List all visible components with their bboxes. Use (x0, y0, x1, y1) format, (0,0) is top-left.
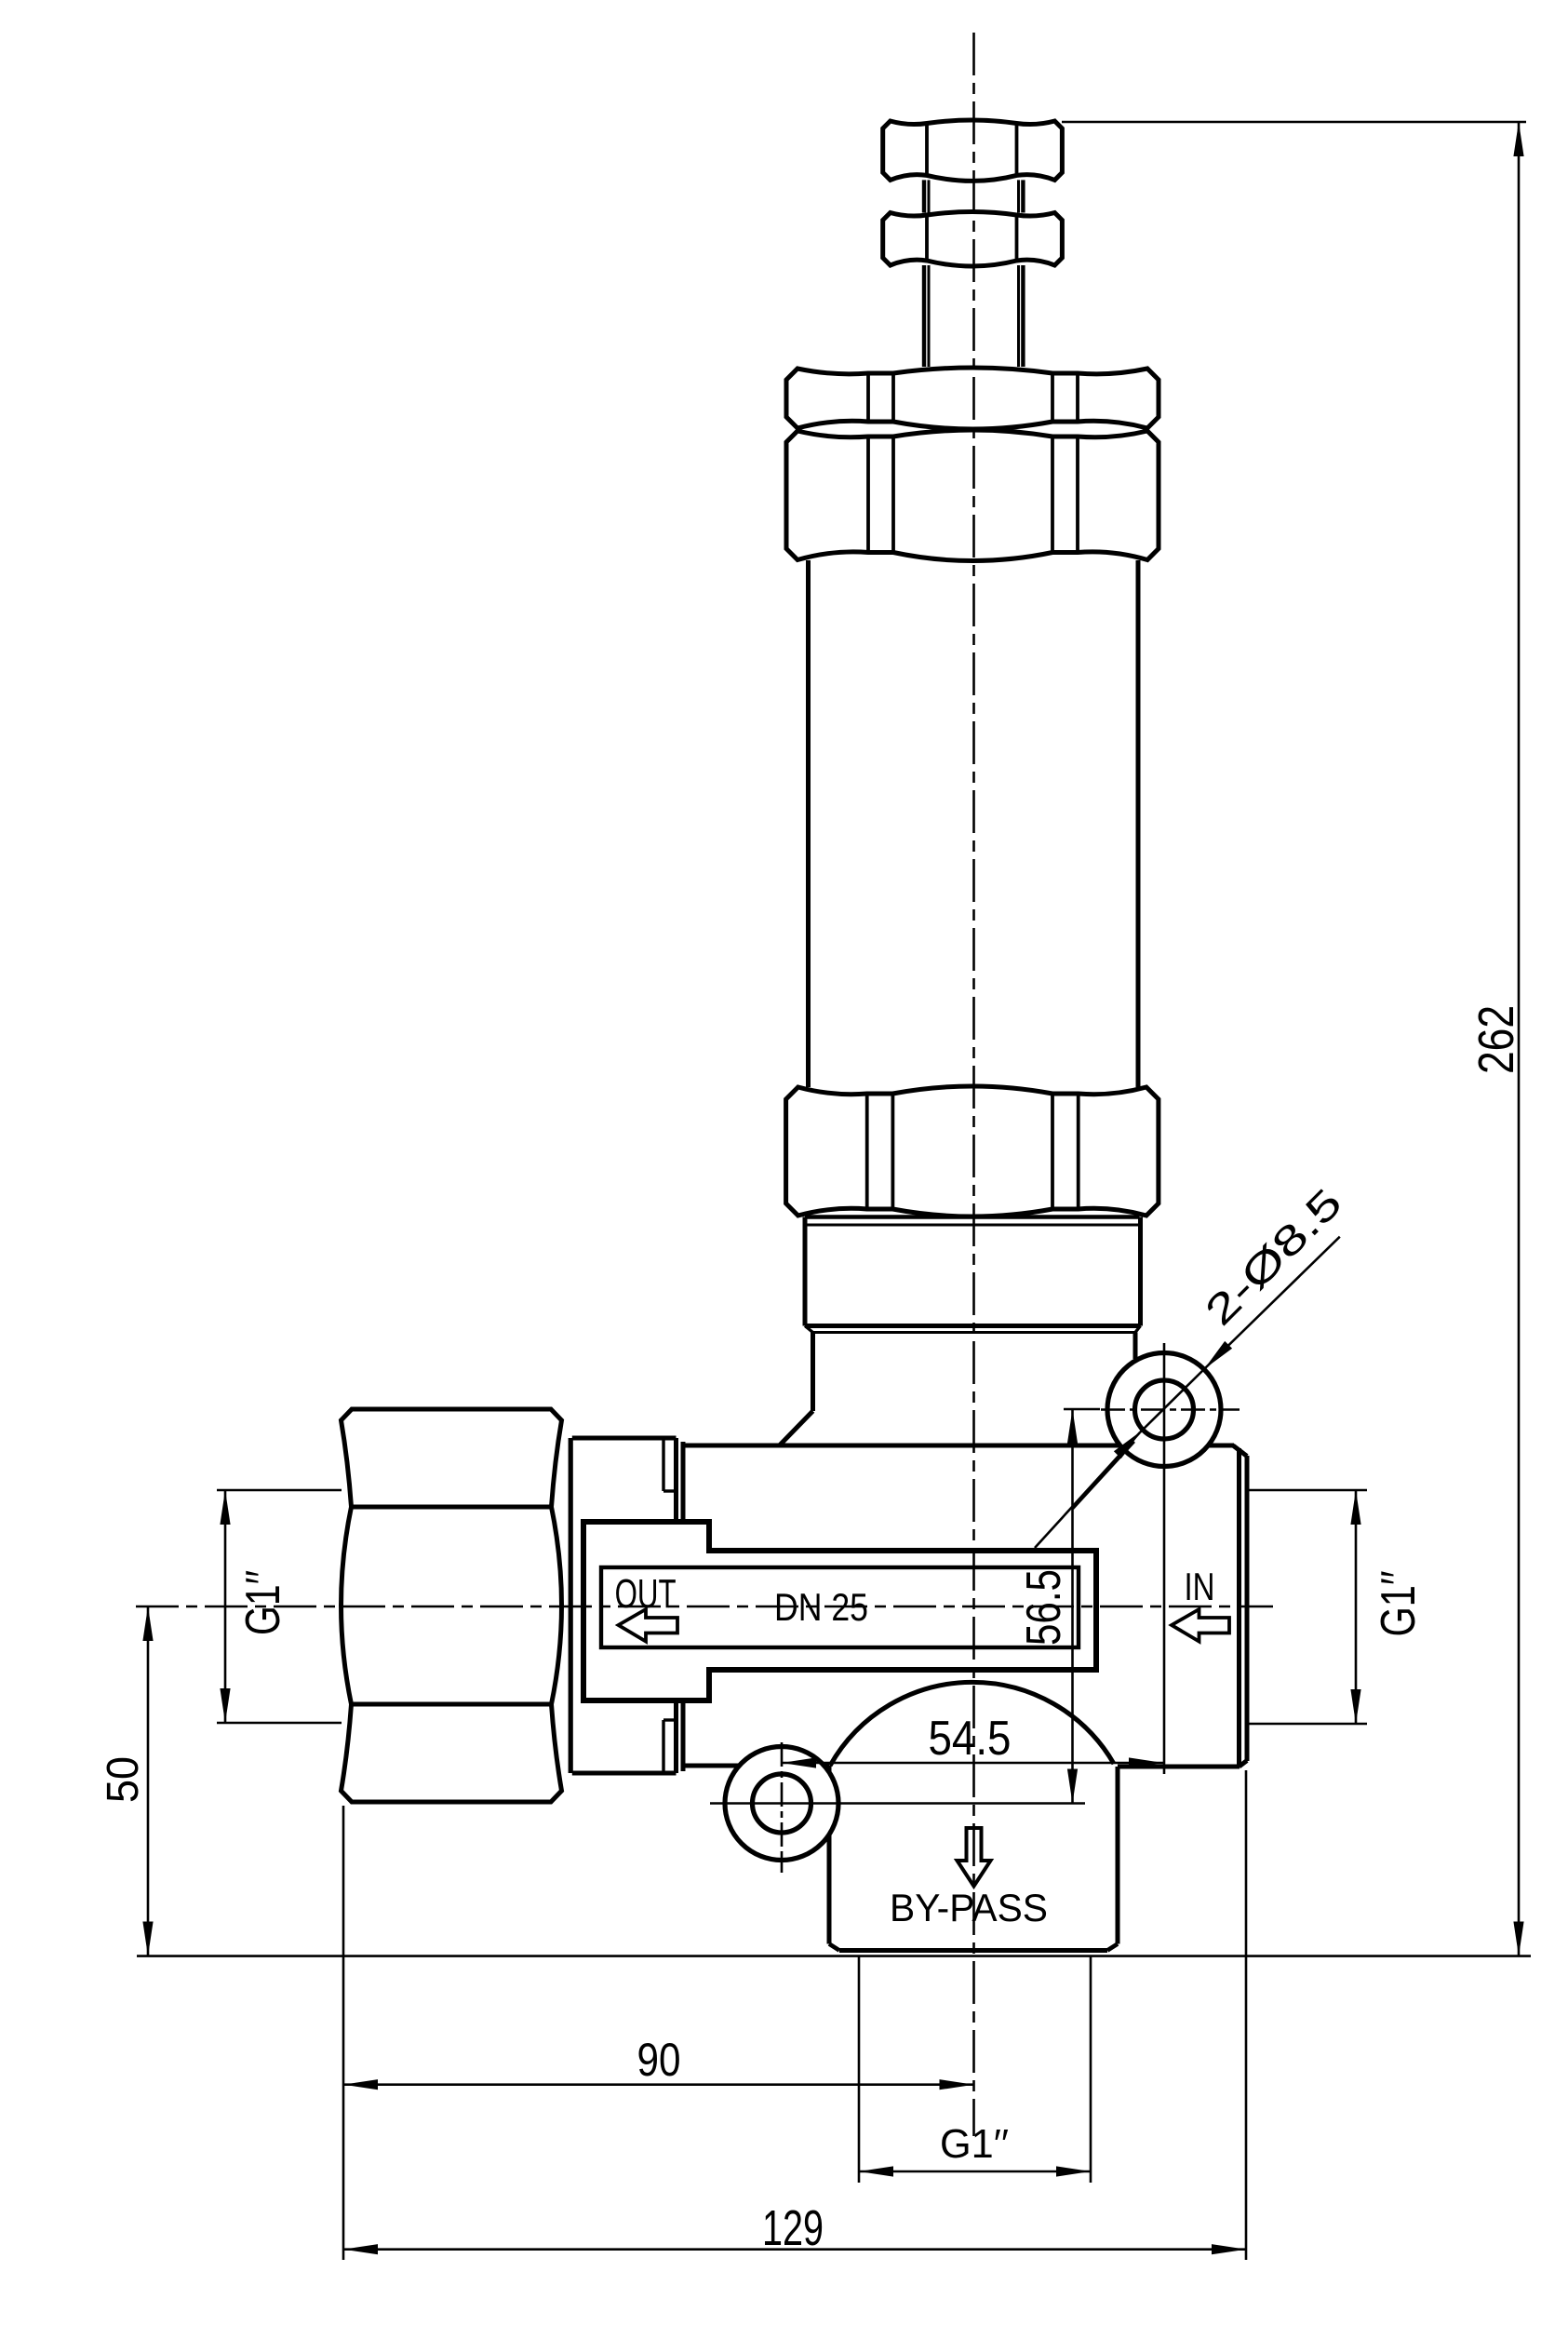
svg-text:50: 50 (99, 1756, 148, 1803)
svg-text:54.5: 54.5 (929, 1712, 1012, 1766)
svg-text:56.5: 56.5 (1017, 1569, 1071, 1646)
svg-text:IN: IN (1185, 1565, 1215, 1608)
svg-text:129: 129 (762, 2200, 824, 2256)
svg-text:262: 262 (1468, 1005, 1524, 1074)
svg-text:G1′′: G1′′ (1372, 1571, 1426, 1637)
svg-text:G1′′: G1′′ (940, 2121, 1009, 2167)
svg-text:BY-PASS: BY-PASS (890, 1886, 1048, 1929)
svg-text:90: 90 (637, 2034, 681, 2086)
svg-text:DN 25: DN 25 (774, 1585, 868, 1629)
svg-text:G1′′: G1′′ (236, 1570, 290, 1635)
